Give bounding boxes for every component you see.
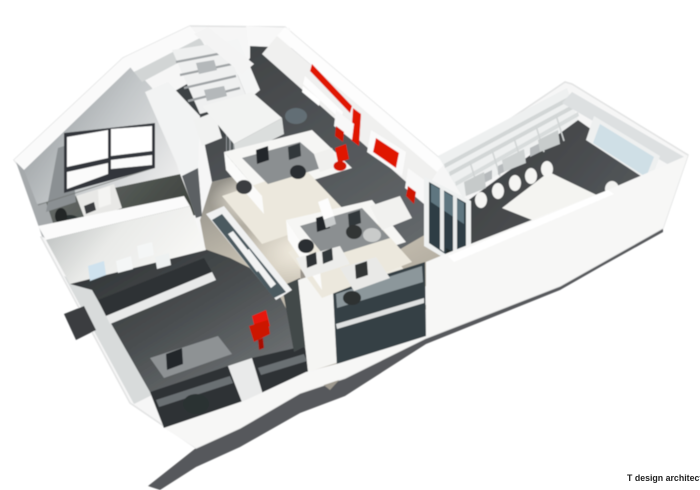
svg-text:T design architecture: T design architecture <box>627 473 700 483</box>
